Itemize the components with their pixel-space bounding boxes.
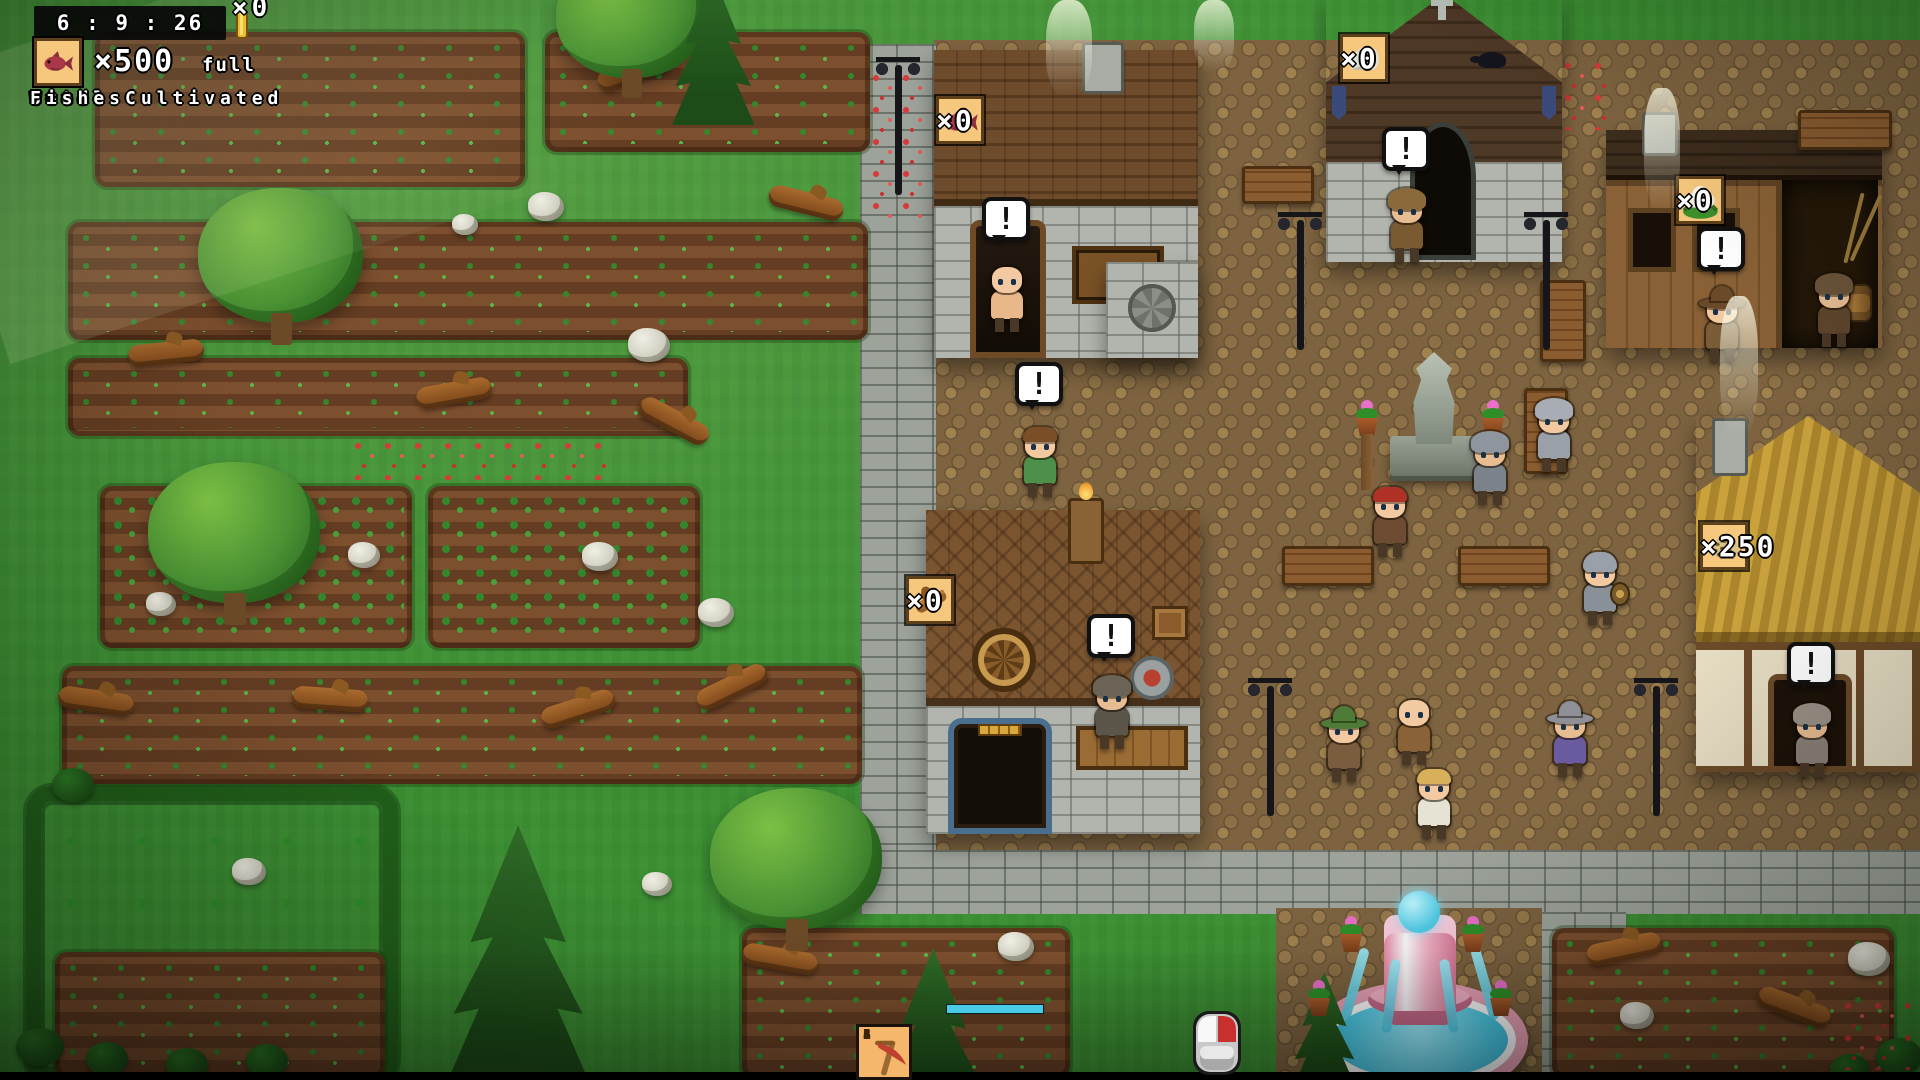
eyes xyxy=(1425,786,1430,792)
building-resource-label: ×0 xyxy=(1340,34,1388,82)
legs xyxy=(1395,248,1419,262)
wood-icon[interactable] xyxy=(34,38,82,86)
stone[interactable] xyxy=(698,598,734,627)
grey-hood-villager[interactable] xyxy=(1468,428,1512,508)
exclamation-bubble: ! xyxy=(1382,127,1430,171)
grinding-wheel-icon xyxy=(1130,656,1174,700)
hood xyxy=(1535,398,1573,420)
hood xyxy=(1793,703,1831,725)
stone[interactable] xyxy=(998,932,1034,961)
tree[interactable] xyxy=(148,462,320,625)
progress-bar xyxy=(946,1004,1044,1014)
bench[interactable] xyxy=(1242,166,1314,204)
flower-pot[interactable] xyxy=(1486,980,1516,1020)
bald-monk[interactable] xyxy=(1392,688,1436,768)
legs xyxy=(1822,333,1846,347)
legs xyxy=(1100,735,1124,749)
lamp-post[interactable] xyxy=(1516,210,1576,350)
body xyxy=(1398,724,1430,752)
resource-count: ×0 xyxy=(936,104,974,137)
blacksmith[interactable]: ! xyxy=(1090,672,1134,752)
grass-icon[interactable] xyxy=(34,38,82,86)
eyes xyxy=(1481,452,1486,458)
shop-sign xyxy=(978,724,1022,736)
tree-canopy xyxy=(710,788,882,929)
mouse-icon[interactable] xyxy=(1190,1008,1244,1078)
flower-pot[interactable] xyxy=(1336,916,1366,956)
body xyxy=(1096,708,1128,736)
log[interactable] xyxy=(766,183,845,223)
stone[interactable] xyxy=(582,542,618,571)
pot-body xyxy=(1462,934,1484,952)
exclamation-text: ! xyxy=(1397,132,1415,167)
fish-icon[interactable] xyxy=(34,38,82,86)
bench[interactable] xyxy=(1458,546,1550,586)
hood xyxy=(1388,188,1426,210)
body xyxy=(1418,798,1450,826)
rosette-emblem-icon xyxy=(1128,284,1176,332)
eyes xyxy=(1031,444,1036,450)
legs xyxy=(1558,763,1582,777)
hair xyxy=(1417,769,1451,784)
stone[interactable] xyxy=(1620,1002,1654,1029)
body xyxy=(1538,431,1570,459)
body xyxy=(1796,736,1828,764)
tree-trunk xyxy=(786,919,808,952)
body xyxy=(1024,456,1056,484)
farm-plot[interactable] xyxy=(428,486,700,648)
body xyxy=(1328,741,1360,769)
crow[interactable] xyxy=(1478,52,1506,68)
progress-fill xyxy=(947,1005,1043,1013)
exclamation-bubble: ! xyxy=(1015,362,1063,406)
window xyxy=(1628,208,1676,272)
eyes xyxy=(1103,696,1108,702)
flower-pot[interactable] xyxy=(1352,400,1382,440)
tree[interactable] xyxy=(198,188,363,345)
blonde-villager[interactable] xyxy=(1412,762,1456,842)
church-monk[interactable]: ! xyxy=(1385,185,1429,265)
hat-top xyxy=(1559,701,1581,716)
eyes xyxy=(1561,724,1566,730)
resource-label: Wood xyxy=(30,88,93,109)
hair xyxy=(1373,487,1407,502)
banner xyxy=(1332,86,1346,120)
bush xyxy=(86,1042,128,1076)
resource-count: ×0 xyxy=(1340,42,1378,75)
exclamation-text: ! xyxy=(997,202,1015,237)
flower-patch xyxy=(1560,60,1610,130)
chimney-icon xyxy=(1642,112,1678,156)
chimney-icon xyxy=(1068,498,1104,564)
hunter[interactable]: ! xyxy=(1700,285,1744,365)
exclamation-bubble: ! xyxy=(1697,227,1745,271)
exclamation-bubble: ! xyxy=(982,197,1030,241)
body xyxy=(1391,221,1423,249)
flower-pot[interactable] xyxy=(1458,916,1488,956)
game-viewport[interactable]: 6 : 9 : 26 ×0 ×500fullTotal Cultivated×5… xyxy=(0,0,1920,1080)
pot-body xyxy=(1490,998,1512,1016)
body xyxy=(1554,736,1586,764)
eyes xyxy=(1381,504,1386,510)
cauliflower-icon[interactable] xyxy=(34,38,82,86)
fisherman[interactable] xyxy=(1812,270,1856,350)
body xyxy=(1818,306,1850,334)
chimney-icon xyxy=(1082,42,1124,94)
crate[interactable] xyxy=(1152,606,1188,640)
eyes xyxy=(1803,724,1808,730)
chimney-icon xyxy=(1712,418,1748,476)
exclamation-bubble: ! xyxy=(1787,642,1835,686)
legs xyxy=(1710,348,1734,362)
lamp-post[interactable] xyxy=(1240,676,1300,816)
bush xyxy=(16,1028,64,1066)
bench[interactable] xyxy=(1282,546,1374,586)
bush xyxy=(52,768,94,802)
stone-icon[interactable] xyxy=(34,38,82,86)
exclamation-bubble: ! xyxy=(1087,614,1135,658)
tree-trunk xyxy=(271,313,292,344)
stone[interactable] xyxy=(348,542,380,568)
body xyxy=(991,291,1023,319)
resource-count: ×0 xyxy=(906,584,944,617)
head xyxy=(992,267,1022,293)
player-red-hair[interactable] xyxy=(1368,480,1412,560)
chainmail-knight[interactable] xyxy=(1532,395,1576,475)
hood xyxy=(1093,675,1131,697)
farm-plot[interactable] xyxy=(95,32,525,187)
wagon-wheel-icon xyxy=(972,628,1036,692)
hat-top xyxy=(1711,286,1733,301)
eyes xyxy=(1825,294,1830,300)
tree-trunk xyxy=(224,593,246,626)
building-resource-label: ×0 xyxy=(906,576,954,624)
legs xyxy=(1028,483,1052,497)
eyes xyxy=(1405,712,1410,718)
farm-boy[interactable]: ! xyxy=(1018,420,1062,500)
eyes xyxy=(1713,309,1718,315)
head xyxy=(1399,700,1429,726)
tree-trunk xyxy=(622,69,642,98)
exclamation-text: ! xyxy=(1712,232,1730,267)
hood xyxy=(1471,431,1509,453)
legs xyxy=(1588,611,1612,625)
tree-canopy xyxy=(556,0,706,78)
legs xyxy=(1478,491,1502,505)
lamp-post[interactable] xyxy=(1626,676,1686,816)
eyes xyxy=(998,279,1003,285)
hat-top xyxy=(1333,706,1355,721)
body xyxy=(1706,321,1738,349)
legs xyxy=(1542,458,1566,472)
shield xyxy=(1610,582,1630,606)
legs xyxy=(1378,543,1402,557)
tree-canopy xyxy=(198,188,363,323)
flower-pot[interactable] xyxy=(1304,980,1334,1020)
eyes xyxy=(1335,729,1340,735)
gold-count: ×0 xyxy=(232,0,271,23)
stone[interactable] xyxy=(232,858,266,885)
stone[interactable] xyxy=(1848,942,1890,976)
flower-patch xyxy=(350,440,610,480)
fountain-orb xyxy=(1398,891,1440,933)
eyes xyxy=(1545,419,1550,425)
resource-count: ×0 xyxy=(1676,184,1714,217)
building-workshop[interactable] xyxy=(926,510,1200,834)
tree[interactable] xyxy=(710,788,882,951)
body xyxy=(1474,464,1506,492)
bench[interactable] xyxy=(1798,110,1892,150)
resource-count: ×250 xyxy=(1700,530,1775,563)
stone-shrine[interactable] xyxy=(1106,262,1198,358)
building-resource-label: ×0 xyxy=(936,96,984,144)
letterbox-bar xyxy=(0,1072,1920,1080)
lamp-post[interactable] xyxy=(868,55,928,195)
banner xyxy=(1542,86,1556,120)
legs xyxy=(1332,768,1356,782)
exclamation-text: ! xyxy=(1102,619,1120,654)
barn-monk[interactable]: ! xyxy=(1790,700,1834,780)
slot-number: 6 xyxy=(863,1028,871,1043)
helmet xyxy=(1583,552,1617,572)
shield-knight[interactable] xyxy=(1578,548,1622,628)
legs xyxy=(995,318,1019,332)
eyes xyxy=(1591,572,1596,578)
candle-flame-icon xyxy=(1079,482,1093,500)
flower-patch xyxy=(1840,1000,1910,1070)
stone[interactable] xyxy=(642,872,672,896)
legs xyxy=(1800,763,1824,777)
toolbar-slot-6[interactable]: 6 xyxy=(856,1024,912,1080)
exclamation-text: ! xyxy=(1802,647,1820,682)
exclamation-text: ! xyxy=(1030,367,1048,402)
eyes xyxy=(1398,209,1403,215)
cross-icon xyxy=(1438,0,1446,20)
building-resource-label: ×0 xyxy=(1676,176,1724,224)
stone[interactable] xyxy=(628,328,670,362)
body xyxy=(1374,516,1406,544)
pot-body xyxy=(1340,934,1362,952)
wizard[interactable] xyxy=(1548,700,1592,780)
farm-plot[interactable] xyxy=(68,222,868,340)
green-hat-hunter[interactable] xyxy=(1322,705,1366,785)
pot-body xyxy=(1308,998,1330,1016)
farm-plot[interactable] xyxy=(68,358,688,436)
lamp-post[interactable] xyxy=(1270,210,1330,350)
stone[interactable] xyxy=(528,192,564,221)
legs xyxy=(1422,825,1446,839)
stone-path-bottom[interactable] xyxy=(860,850,1920,914)
tree-canopy xyxy=(148,462,320,603)
archer-villager[interactable]: ! xyxy=(985,255,1029,335)
hair xyxy=(1023,427,1057,442)
building-resource-label: ×250 xyxy=(1700,522,1748,570)
hood xyxy=(1815,273,1853,295)
pine-tree[interactable] xyxy=(448,825,588,1080)
stone[interactable] xyxy=(452,214,478,235)
